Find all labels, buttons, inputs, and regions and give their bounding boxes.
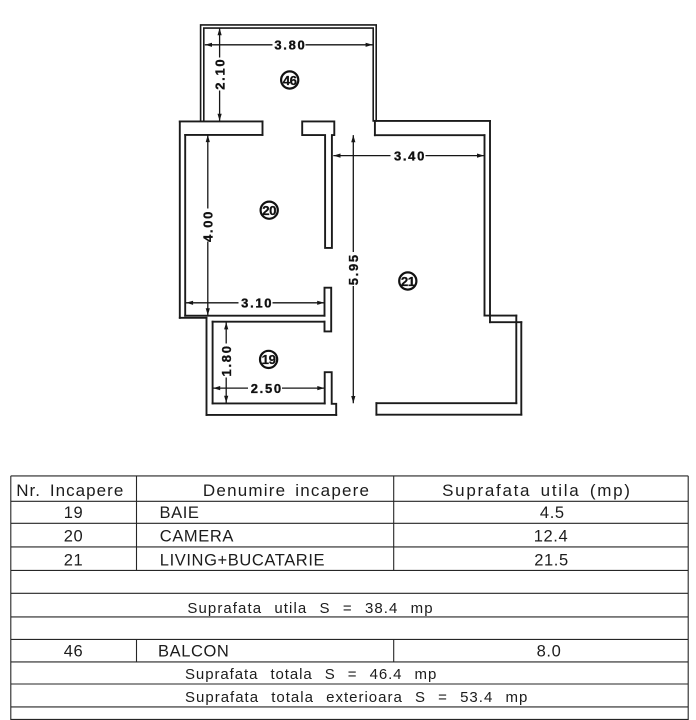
svg-text:Suprafata utila (mp): Suprafata utila (mp) <box>442 481 630 500</box>
svg-text:Suprafata utila S = 38.4 mp: Suprafata utila S = 38.4 mp <box>187 600 433 617</box>
svg-text:LIVING+BUCATARIE: LIVING+BUCATARIE <box>160 552 325 570</box>
svg-text:8.0: 8.0 <box>537 643 562 661</box>
svg-text:1.80: 1.80 <box>219 344 234 376</box>
svg-text:4.5: 4.5 <box>540 504 565 522</box>
svg-text:BAIE: BAIE <box>160 504 200 522</box>
svg-text:21.5: 21.5 <box>534 552 569 570</box>
svg-text:2.50: 2.50 <box>251 381 283 396</box>
svg-text:12.4: 12.4 <box>534 527 569 545</box>
svg-text:5.95: 5.95 <box>346 253 361 285</box>
svg-text:Denumire incapere: Denumire incapere <box>203 481 370 500</box>
svg-text:3.80: 3.80 <box>274 38 306 53</box>
svg-text:20: 20 <box>64 527 84 545</box>
svg-text:BALCON: BALCON <box>158 643 229 661</box>
svg-text:19: 19 <box>262 352 276 367</box>
svg-text:3.40: 3.40 <box>394 148 426 163</box>
svg-text:21: 21 <box>401 274 415 289</box>
svg-text:21: 21 <box>64 552 84 570</box>
svg-text:4.00: 4.00 <box>201 210 216 242</box>
svg-text:19: 19 <box>64 504 84 522</box>
svg-text:46: 46 <box>283 73 297 88</box>
svg-text:CAMERA: CAMERA <box>160 527 234 545</box>
svg-text:Suprafata totala S = 46.4 mp: Suprafata totala S = 46.4 mp <box>185 666 437 683</box>
svg-text:Nr. Incapere: Nr. Incapere <box>16 481 124 500</box>
svg-text:Suprafata totala exterioara S: Suprafata totala exterioara S = 53.4 mp <box>185 689 528 706</box>
svg-text:2.10: 2.10 <box>212 58 227 90</box>
svg-text:3.10: 3.10 <box>241 296 273 311</box>
svg-text:46: 46 <box>64 642 84 660</box>
svg-text:20: 20 <box>262 203 276 218</box>
